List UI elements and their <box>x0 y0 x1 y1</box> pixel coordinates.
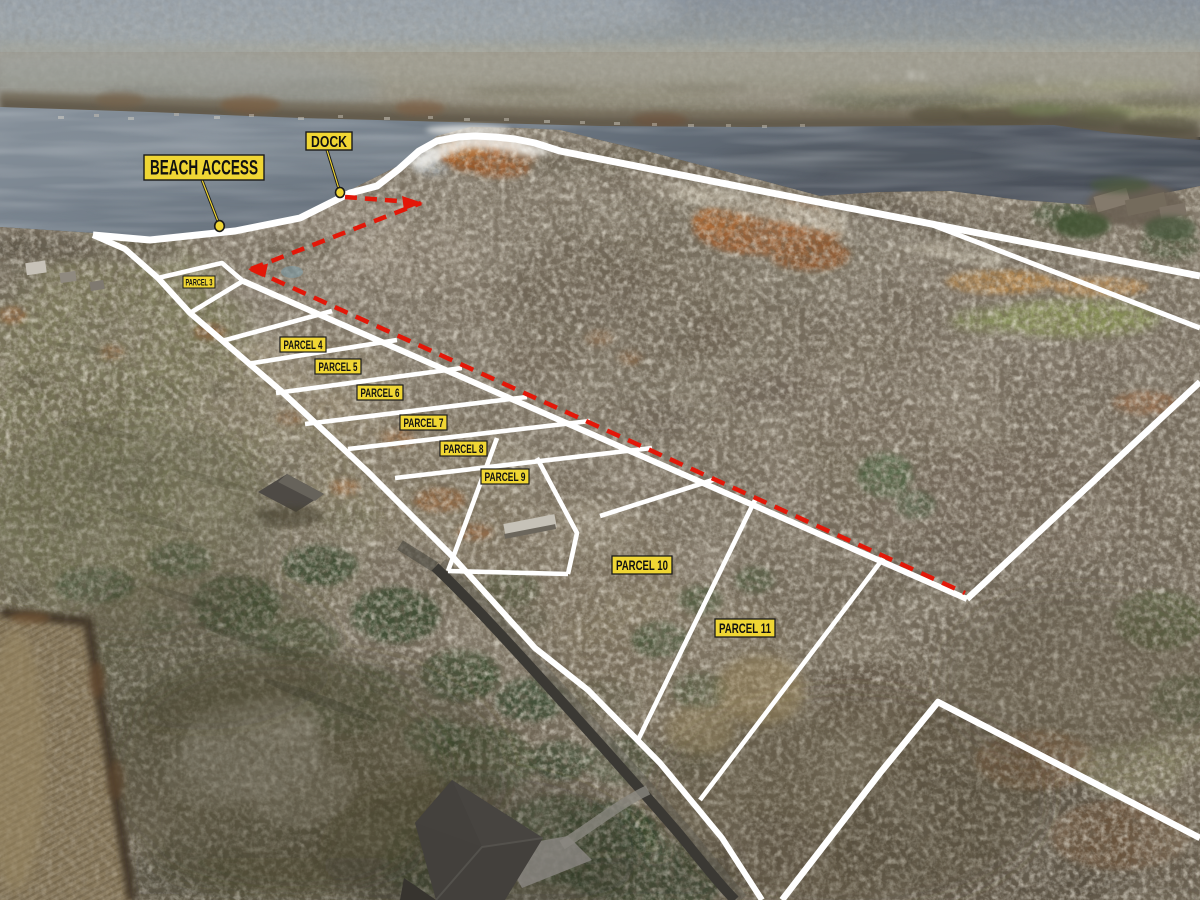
svg-text:PARCEL 9: PARCEL 9 <box>485 470 526 484</box>
svg-text:PARCEL 4: PARCEL 4 <box>284 338 323 352</box>
svg-text:PARCEL 6: PARCEL 6 <box>361 386 400 400</box>
svg-text:BEACH ACCESS: BEACH ACCESS <box>150 157 258 180</box>
svg-text:DOCK: DOCK <box>311 134 348 151</box>
svg-text:PARCEL 7: PARCEL 7 <box>404 416 444 430</box>
svg-text:PARCEL 5: PARCEL 5 <box>319 360 358 374</box>
svg-text:PARCEL 10: PARCEL 10 <box>616 557 668 573</box>
svg-text:PARCEL 8: PARCEL 8 <box>444 442 484 456</box>
svg-text:PARCEL 3: PARCEL 3 <box>186 278 213 288</box>
svg-text:PARCEL 11: PARCEL 11 <box>719 620 771 636</box>
